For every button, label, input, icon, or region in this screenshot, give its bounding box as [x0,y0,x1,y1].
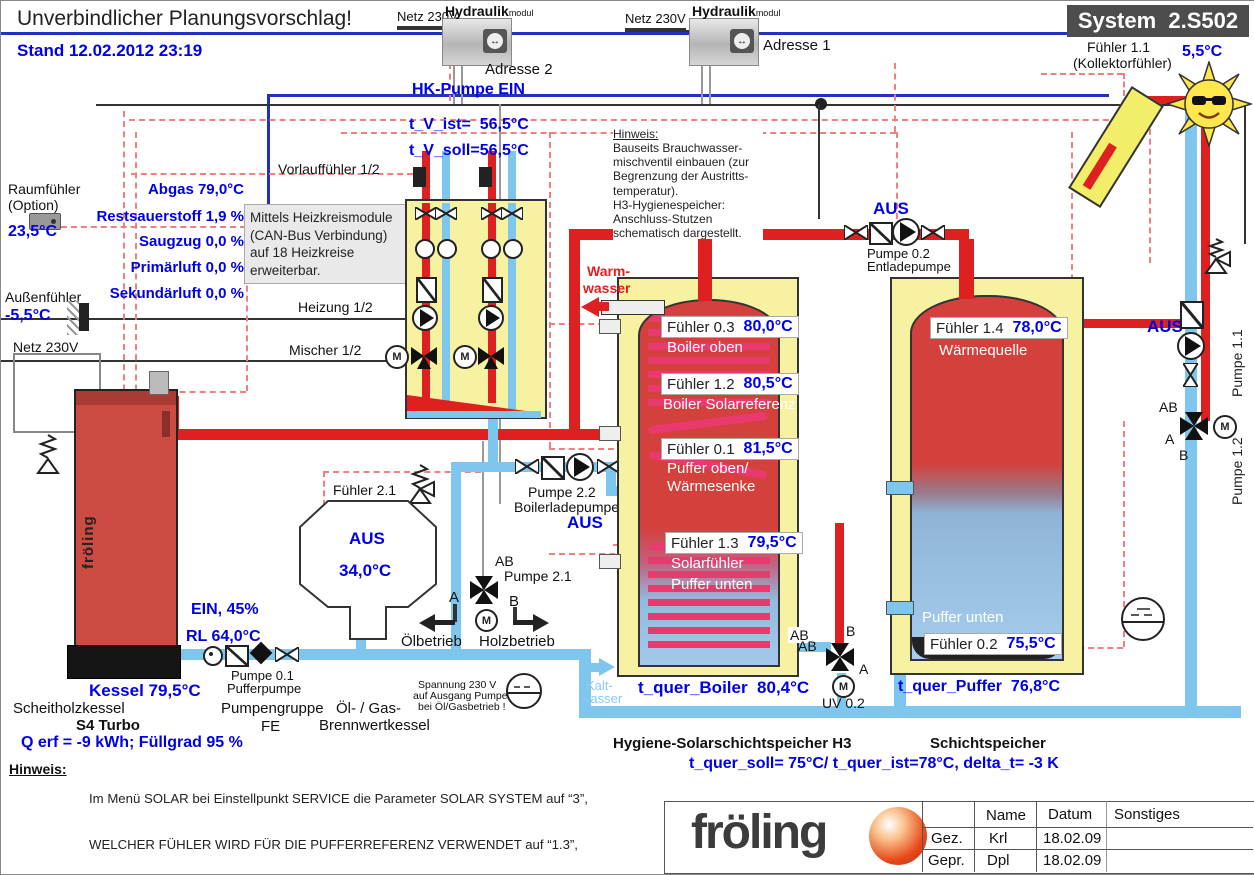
three-way-valve-icon [1177,409,1211,443]
fuehler01-temp: 81,5°C [744,440,793,458]
collector-temp: 5,5°C [1182,43,1222,61]
address-dial-icon[interactable]: ↔ [483,29,507,53]
puffer-unten-label: Puffer unten [922,609,1003,626]
vorlauf-sensor-a [413,167,426,187]
hinweis-top-box: Hinweis: Bauseits Brauchwasser- mischven… [613,127,763,240]
warmwasser-pipe [601,300,665,315]
oelbetrieb-arrow-icon [419,614,435,632]
ruecklauf-temp: RL 64,0°C [186,628,261,646]
uv-b-label: B [846,623,855,639]
module-wire [709,64,711,104]
pumpe12-label: Pumpe 1.2 [1229,397,1245,505]
kessel-temp: Kessel 79,5°C [89,681,201,701]
heizkreis-infobox: Mittels Heizkreismodule (CAN-Bus Verbind… [244,204,412,284]
raum-temp: 23,5°C [8,223,57,241]
electric-line [96,104,1246,106]
fuehler13-name: Fühler 1.3 [671,535,739,552]
oelbetrieb-label: Ölbetrieb [401,633,462,650]
kessel-flue [149,371,169,395]
kaltwasser-label2: wasser [581,692,622,707]
sun-icon [1166,61,1252,147]
schicht-stub-blue [886,481,914,495]
expansion-vessel-icon [1119,595,1167,643]
wire-node [815,98,827,110]
schicht-stub-blue [886,601,914,615]
info-line: erweiterbar. [250,262,406,280]
hydraulik-brand-a: Hydraulik [445,3,509,19]
mixer-motor-a: M [385,345,409,369]
pump-icon [565,452,595,482]
oelkessel-name1: Öl- / Gas- [336,700,401,717]
hydraulik-suffix-b: modul [756,8,781,18]
pumpe21-label: Pumpe 2.1 [504,568,572,584]
t-quer-puffer: t_quer_Puffer 76,8°C [898,678,1060,696]
fuehler02-temp: 75,5°C [1007,635,1056,653]
pipe-bottom-run [579,706,1241,718]
mixer-valve-icon [476,343,506,369]
t-v-ist: t_V_ist= 56,5°C [409,116,529,134]
valve-icon-vertical [1183,363,1198,387]
waermequelle-label: Wärmequelle [939,342,1027,359]
wall-hatch-icon [67,301,79,335]
stand-date: Stand 12.02.2012 23:19 [17,41,202,61]
table-vline [922,801,923,872]
pipe-hot-schicht-stub [959,239,974,299]
fuehler03-name: Fühler 0.3 [667,319,735,336]
collector-sensor-sub: (Kollektorfühler) [1073,55,1172,71]
holzbetrieb-arrow-icon [533,614,549,632]
froeling-logo-sphere [869,807,927,865]
scheitholzkessel-body: fröling [74,389,178,653]
valve-icon [844,225,868,240]
valve-icon [435,207,457,220]
pumpengruppe-fe: FE [261,718,280,735]
fuehler01-chip: Fühler 0.181,5°C [661,438,799,460]
info-line: Mittels Heizkreismodule [250,209,406,227]
hinweis-bottom-title: Hinweis: [9,761,67,777]
uv-valve-icon [823,640,857,674]
fitting-icon [203,646,223,666]
uv-name-label: UV 0.2 [822,695,865,711]
pumpe11-label: Pumpe 1.1 [1229,297,1245,397]
fitting-icon [437,239,457,259]
arrow-bar [435,620,455,625]
heizung-line [1,318,407,320]
diagram-page: Unverbindlicher Planungsvorschlag! Stand… [0,0,1254,875]
check-valve-icon [225,645,249,667]
can-bus-line [1,32,1109,35]
valve-icon [275,647,299,662]
fuehler12-chip: Fühler 1.280,5°C [661,373,799,395]
check-valve-icon [416,277,437,303]
puffer-oben-label: Puffer oben/ [667,460,748,477]
pumpe21-motor: M [475,609,498,632]
hydraulik-brand-b: Hydraulik [692,3,756,19]
hydraulik-suffix-a: modul [509,8,534,18]
sensor-dash [1149,119,1151,263]
row-gepr-date: 18.02.09 [1043,852,1101,869]
three-way-valve-icon [467,573,501,607]
valve-icon [481,207,503,220]
pump-icon [477,304,505,332]
pipe-hot-h3-stub [698,239,712,301]
module-wire [701,64,703,104]
netz-230v-left: Netz 230V [13,339,78,355]
spannung-note3: bei Öl/Gasbetrieb ! [418,701,506,713]
col-name-header: Name [986,807,1026,824]
abgas-value: Abgas 79,0°C [89,181,244,198]
riser-blue-b2 [508,203,516,413]
solar-b-label: B [1179,447,1188,463]
aussenfuehler-icon [79,303,89,331]
check-valve-icon [1180,301,1204,329]
uv-ab-label: AB [798,638,817,654]
pumpe02-state: AUS [873,199,909,219]
hinweis-top-line: Begrenzung der Austritts- [613,169,763,183]
pipe-cold-elbow [488,415,498,467]
heizung-label: Heizung 1/2 [298,299,373,315]
module-dash [894,63,896,132]
valve-icon [415,207,437,220]
hinweis-top-line: schematisch dargestellt. [613,226,763,240]
vorlauf-sensor-b [479,167,492,187]
hinweis-top-line: mischventil einbauen (zur [613,155,763,169]
riser-red-b2 [488,203,496,403]
boiler-solarreferenz-label: Boiler Solarreferenz [663,396,796,413]
hinweis-top-line: temperatur). [613,184,763,198]
hinweis-top-title: Hinweis: [613,127,763,141]
hinweis-top-line: Anschluss-Stutzen [613,212,763,226]
hinweis-top-line: H3-Hygienespeicher: [613,198,763,212]
mixer-motor-b: M [453,345,477,369]
t-quer-boiler: t_quer_Boiler 80,4°C [638,678,809,698]
table-hline [922,827,1253,828]
check-valve-icon [869,222,893,245]
hk-pumpe-status: HK-Pumpe EIN [412,81,525,99]
pipe-cold-drop [451,462,461,658]
hx-strand [648,412,768,435]
col-sonstiges-header: Sonstiges [1114,806,1180,823]
kaltwasser-arrow-bar [586,663,600,672]
info-line: (CAN-Bus Verbindung) [250,227,406,245]
fuehler14-temp: 78,0°C [1013,319,1062,337]
pumpe22-label1: Pumpe 2.2 [528,484,596,500]
h3-caption: Hygiene-Solarschichtspeicher H3 [613,735,851,752]
h3-stub [599,426,621,441]
col-datum-header: Datum [1048,806,1092,823]
pipe-hot-riser [569,229,580,439]
solar-a-label: A [1165,431,1174,447]
raum-dash [61,226,246,228]
boiler-oben-label: Boiler oben [667,339,743,356]
holzbetrieb-label: Holzbetrieb [479,633,555,650]
system-badge: System 2.S502 [1067,5,1249,37]
can-bus-line-2 [267,94,1109,97]
warmwasser-label2: wasser [583,280,630,296]
oelkessel-name2: Brennwertkessel [319,717,430,734]
kessel-q-line: Q erf = -9 kWh; Füllgrad 95 % [21,734,243,752]
can-bus-drop [267,94,270,214]
row-gez-name: Krl [989,830,1007,847]
valve-icon [515,459,539,474]
fuehler02-name: Fühler 0.2 [930,636,998,653]
pumpe02-label2: Entladepumpe [867,260,951,275]
fitting-icon [481,239,501,259]
pump-icon [891,217,921,247]
aussen-temp: -5,5°C [5,307,51,325]
hinweis-bottom-box: Im Menü SOLAR bei Einstellpunkt SERVICE … [89,761,664,875]
fuehler14-chip: Fühler 1.478,0°C [930,317,1068,339]
row-gez-label: Gez. [931,830,963,847]
safety-valve-icon [33,433,63,477]
valve-icon [501,207,523,220]
restsauerstoff-value: Restsauerstoff 1,9 % [89,208,244,225]
table-vline [974,801,975,872]
address-dial-icon[interactable]: ↔ [730,29,754,53]
puffer-unten-label-h3: Puffer unten [671,576,752,593]
pumpe01-label2: Pufferpumpe [227,682,301,697]
row-gepr-label: Gepr. [928,852,965,869]
kaltwasser-arrow-icon [599,658,615,676]
fuehler12-name: Fühler 1.2 [667,376,735,393]
p21-ab-label: AB [495,553,514,569]
kessel-name1: Scheitholzkessel [13,700,125,717]
t-quer-soll-line: t_quer_soll= 75°C/ t_quer_ist=78°C, delt… [689,755,1059,773]
valve-icon [921,225,945,240]
fuehler03-temp: 80,0°C [744,318,793,336]
pumpe22-state: AUS [567,513,603,533]
fuehler03-chip: Fühler 0.380,0°C [661,316,799,338]
uv-a-label: A [859,661,868,677]
solarfuehler-label: Solarfühler [671,555,744,572]
fitting-icon [503,239,523,259]
fuehler13-chip: Fühler 1.379,5°C [665,532,803,554]
pipe-uv-b [835,523,844,645]
hydraulik-modul-a: Hydraulikmodul ↔ [442,18,512,66]
hydraulik-modul-b: Hydraulikmodul ↔ [689,18,759,66]
pipe-hot-main [169,429,621,440]
froeling-logo-text: fröling [691,805,826,860]
schicht-caption: Schichtspeicher [930,735,1046,752]
adresse-2-label: Adresse 2 [485,61,553,78]
fuehler01-name: Fühler 0.1 [667,441,735,458]
waermesenke-label: Wärmesenke [667,478,755,495]
table-vline [1036,801,1037,872]
fuehler13-temp: 79,5°C [748,534,797,552]
h3-stub [599,319,621,334]
vorlauffuehler-label: Vorlauffühler 1/2 [278,161,380,177]
kessel-base [67,645,181,679]
oelkessel-temp: 34,0°C [339,561,391,581]
fuehler14-name: Fühler 1.4 [936,320,1004,337]
adresse-1-label: Adresse 1 [763,37,831,54]
fuehler12-temp: 80,5°C [744,375,793,393]
hinweis-top-line: Bauseits Brauchwasser- [613,141,763,155]
sensor-dash [1041,73,1123,75]
primaerluft-value: Primärluft 0,0 % [89,259,244,276]
safety-valve-icon [1201,237,1231,277]
table-hline [922,849,1253,850]
sensor-dash [135,132,137,431]
kessel-name2: S4 Turbo [76,717,140,734]
page-title: Unverbindlicher Planungsvorschlag! [17,7,352,31]
raumfuehler-label: Raumfühler [8,181,80,197]
warmwasser-arrow-bar [597,302,609,311]
pumpe01-state: EIN, 45% [191,601,259,619]
distributor-blue [407,411,541,418]
info-line: auf 18 Heizkreise [250,244,406,262]
pump-icon [1176,331,1206,361]
pumpengruppe-label: Pumpengruppe [221,700,324,717]
netz-230v-label-b: Netz 230V [625,12,686,30]
fuehler02-chip: Fühler 0.275,5°C [924,633,1062,655]
sekundaerluft-value: Sekundärluft 0,0 % [89,285,244,302]
fitting-icon [415,239,435,259]
sensor-dash [129,119,1149,121]
row-gepr-name: Dpl [987,852,1010,869]
netz-wire-b [625,30,691,32]
check-valve-icon [482,277,503,303]
row-gez-date: 18.02.09 [1043,830,1101,847]
h3-stub [599,554,621,569]
tank-dash-v [549,132,551,448]
hinweis-bottom-line: WELCHER FÜHLER WIRD FÜR DIE PUFFERREFERE… [89,837,664,852]
riser-blue-a2 [442,203,450,413]
arrow-bar [513,620,533,625]
pump-icon [411,304,439,332]
sensor-dash [1123,73,1125,96]
warmwasser-label1: Warm- [587,263,630,279]
mixer-valve-icon [409,343,439,369]
kessel-brand-vertical: fröling [80,439,97,569]
riser-red-a2 [422,203,430,403]
hinweis-bottom-line: Im Menü SOLAR bei Einstellpunkt SERVICE … [89,791,664,806]
oelkessel-state: AUS [349,529,385,549]
collector-pipe [1083,143,1117,190]
expansion-vessel-icon [504,671,544,711]
table-vline [1106,801,1107,872]
wire-pump02 [818,104,820,219]
fuehler21-label: Fühler 2.1 [333,482,396,498]
netz-wire-a [397,28,444,30]
pipe-solar-cold [1185,101,1197,713]
check-valve-icon [541,456,565,480]
collector-sensor-label: Fühler 1.1 [1087,39,1150,55]
solar-ab-label: AB [1159,399,1178,415]
raumfuehler-sub: (Option) [8,197,59,213]
mischer-label: Mischer 1/2 [289,342,361,358]
t-v-soll: t_V_soll=56,5°C [409,142,529,160]
saugzug-value: Saugzug 0,0 % [89,233,244,250]
